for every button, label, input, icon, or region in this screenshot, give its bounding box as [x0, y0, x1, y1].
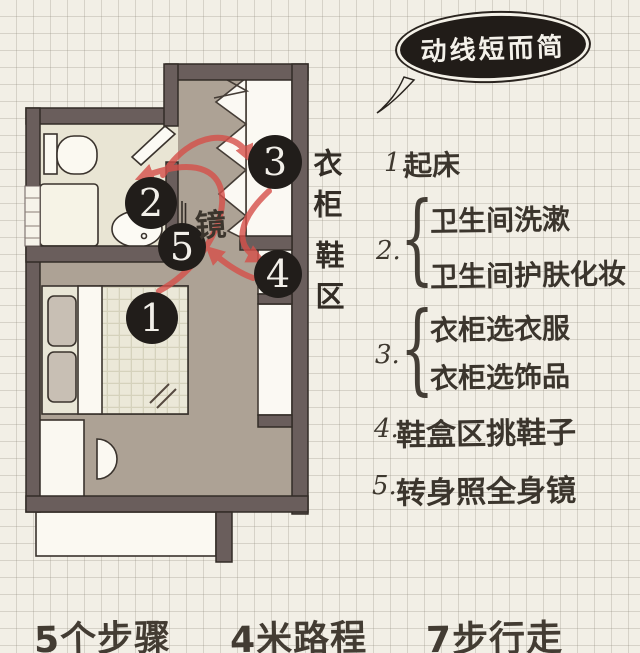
- wall-bathroom-top: [26, 108, 174, 124]
- shower-counter-icon: [40, 184, 98, 246]
- step-5-text: 转身照全身镜: [396, 465, 577, 512]
- wall-top-right: [166, 64, 308, 80]
- step-marker-3: 3: [248, 135, 302, 189]
- nightstand-desk: [37, 420, 84, 498]
- step-marker-4-label: 4: [266, 252, 290, 296]
- summary-steps-count: 5个步骤: [34, 609, 172, 653]
- notebook-page: 1 2 3 4 5 动线短而简 衣柜 鞋区 镜 1.: [0, 0, 640, 653]
- balcony: [36, 512, 216, 556]
- blanket-fold: [78, 286, 102, 414]
- summary-distance: 4米路程: [230, 609, 368, 653]
- step-marker-2-label: 2: [139, 181, 163, 225]
- toilet-bowl-icon: [57, 136, 97, 174]
- pillow-top-icon: [48, 296, 76, 346]
- divider-cabinet-bottom: [258, 415, 292, 427]
- wall-bottom: [26, 496, 308, 512]
- step-marker-1: 1: [126, 292, 178, 344]
- step-1-text: 起床: [404, 144, 461, 185]
- summary-paces: 7步行走: [426, 609, 564, 653]
- wardrobe-side-label: 衣柜: [305, 148, 347, 230]
- step-3-number: 3.: [375, 340, 400, 370]
- step-2-text-1: 卫生间洗漱: [430, 198, 571, 240]
- step-2-text-2: 卫生间护肤化妆: [430, 252, 627, 295]
- speech-bubble-tail: [377, 77, 414, 113]
- step-5-number: 5.: [372, 471, 397, 501]
- shoe-cabinet-lower: [258, 304, 292, 415]
- step-marker-1-label: 1: [140, 296, 164, 340]
- step-marker-2: 2: [125, 177, 177, 229]
- step-marker-4: 4: [254, 250, 302, 298]
- bathroom-window: [25, 186, 40, 246]
- step-3-text-2: 衣柜选饰品: [430, 355, 571, 397]
- wall-left: [26, 108, 40, 512]
- wall-corridor-left-upper: [164, 64, 178, 126]
- pillow-bottom-icon: [48, 352, 76, 402]
- step-4-text: 鞋盒区挑鞋子: [396, 407, 577, 454]
- step-marker-3-label: 3: [263, 140, 287, 184]
- step-2-number: 2.: [376, 236, 401, 266]
- wall-bathroom-bedroom-divider: [26, 246, 178, 262]
- step-3-text-1: 衣柜选衣服: [430, 307, 571, 349]
- step-marker-5-label: 5: [170, 225, 194, 269]
- wall-bottom-step: [216, 512, 232, 562]
- shoe-side-label: 鞋区: [307, 240, 349, 322]
- toilet-tank-icon: [44, 134, 57, 174]
- speech-bubble-text: 动线短而简: [420, 26, 566, 68]
- mirror-label: 镜: [193, 199, 227, 246]
